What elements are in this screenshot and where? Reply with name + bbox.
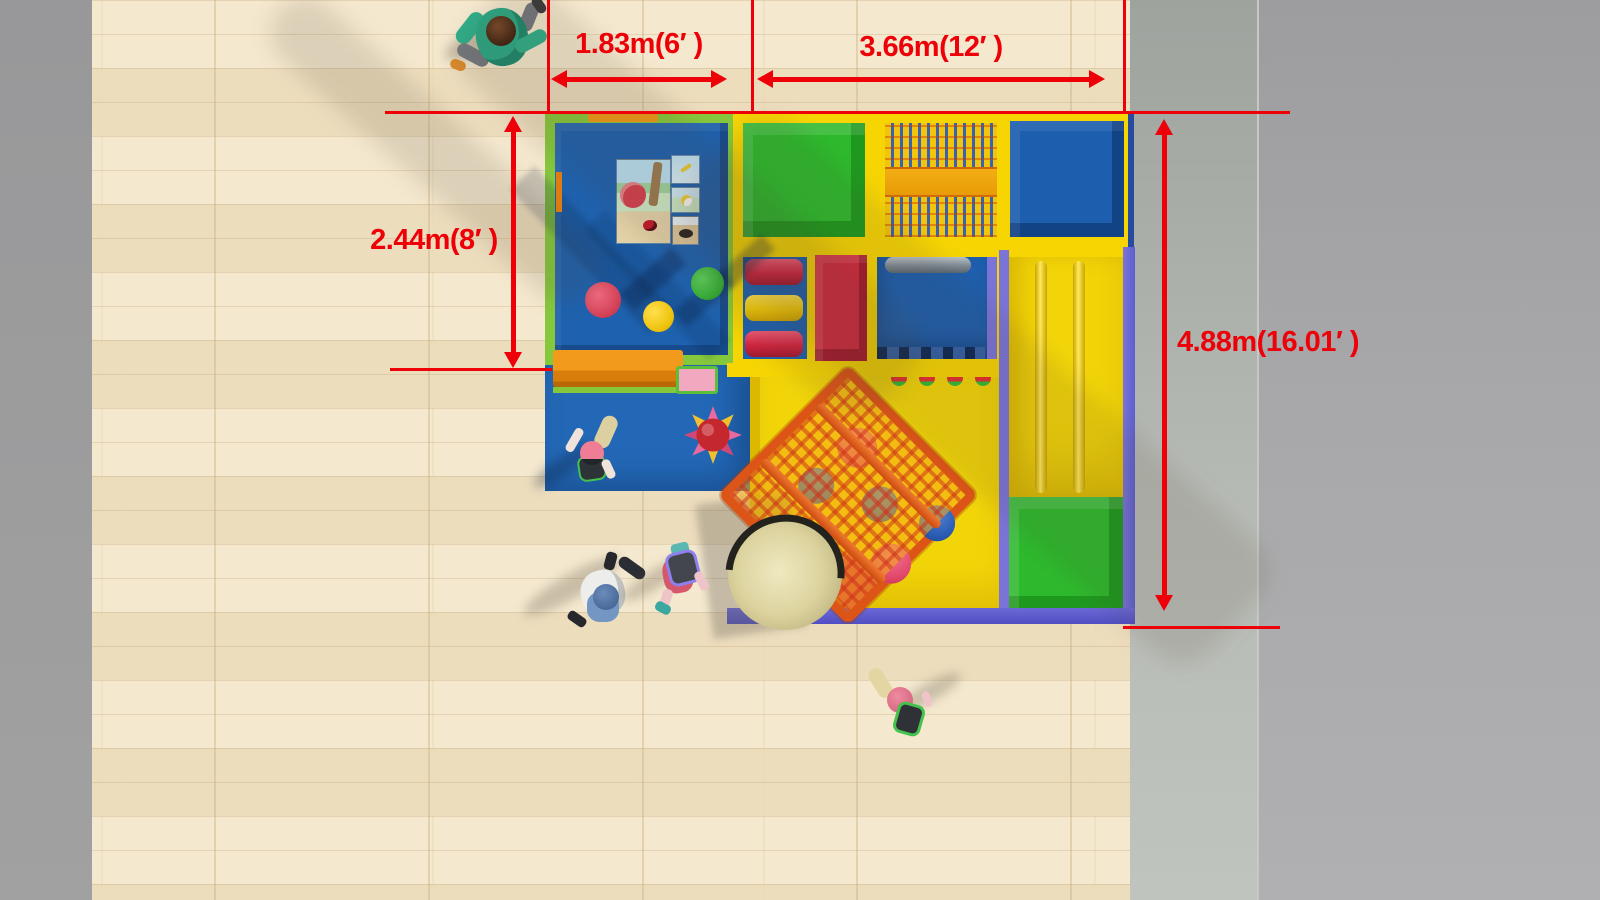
person-head <box>593 584 619 610</box>
pink-pad <box>676 366 718 394</box>
bench-green-lip <box>553 387 683 393</box>
mural-main-panel <box>616 159 671 244</box>
slide-divider <box>1073 261 1085 493</box>
person-head <box>486 16 516 46</box>
mural-tile-ant <box>672 216 699 245</box>
dim-extension-line <box>385 111 1290 114</box>
gray-roller <box>885 257 971 273</box>
dim-extension-line <box>751 0 754 113</box>
blue-block-cell-top-right <box>1000 111 1134 247</box>
green-block-cell <box>733 113 875 247</box>
blue-pit-cell <box>867 247 1007 369</box>
orange-side-handle <box>556 172 562 212</box>
dim-arrow-1-83m <box>551 70 727 88</box>
right-wall-light-band <box>1130 0 1257 900</box>
dim-extension-line <box>1123 0 1126 113</box>
slide-divider <box>1035 261 1047 493</box>
mural-mushroom <box>620 182 646 208</box>
mural-tree-trunk <box>648 162 662 207</box>
purple-vertical-beam <box>999 250 1009 622</box>
dim-arrow-3-66m <box>757 70 1105 88</box>
person-shoe <box>566 609 588 629</box>
knob-beam <box>727 363 1009 377</box>
child-teal-backpack <box>655 535 715 615</box>
orange-top-rail <box>588 114 658 122</box>
blue-edge-strip <box>1128 111 1134 247</box>
mural-daisy <box>681 195 692 206</box>
roller-yellow <box>745 295 803 321</box>
stool-green <box>691 267 724 300</box>
dim-label-height-right: 4.88m(16.01′ ) <box>1166 326 1370 359</box>
dim-extension-line <box>1123 626 1280 629</box>
stool-red <box>585 282 621 318</box>
step-slats <box>877 347 985 359</box>
dim-label-height-left: 2.44m(8′ ) <box>358 224 510 257</box>
mural-tile-dragonfly <box>671 155 700 184</box>
orange-bench <box>553 350 683 387</box>
mural-tile-daisy <box>671 187 700 213</box>
left-wall <box>0 0 92 900</box>
mural-ladybug <box>643 220 657 231</box>
dim-label-width-right: 3.66m(12′ ) <box>833 31 1029 64</box>
playground-plan-scene: 1.83m(6′ ) 3.66m(12′ ) 2.44m(8′ ) 4.88m(… <box>0 0 1600 900</box>
dim-extension-line <box>390 368 552 371</box>
purple-inner-strip <box>987 257 997 359</box>
dim-label-width-left: 1.83m(6′ ) <box>548 28 730 61</box>
dome-ball <box>728 518 842 630</box>
purple-right-edge <box>1123 247 1135 622</box>
mesh-center-band <box>885 167 997 197</box>
child-arm <box>693 570 710 592</box>
stool-yellow <box>643 301 674 332</box>
child-bottom <box>865 665 940 740</box>
person-shoe <box>449 58 467 73</box>
trampoline-mesh-cell <box>875 113 1007 247</box>
roller-red-bottom <box>745 331 803 357</box>
child-pink-cap <box>560 415 620 495</box>
right-wall <box>1130 0 1600 900</box>
mural-ant <box>679 229 693 238</box>
child-head <box>580 441 604 465</box>
green-block-bottom-right <box>1009 497 1123 612</box>
person-adult-teal <box>450 0 545 85</box>
right-wall-dark-band <box>1257 0 1600 900</box>
dim-arrow-4-88m <box>1155 119 1173 611</box>
spiky-ball <box>682 404 744 466</box>
slide-lanes <box>1007 247 1125 497</box>
mural-dragonfly <box>680 163 692 173</box>
